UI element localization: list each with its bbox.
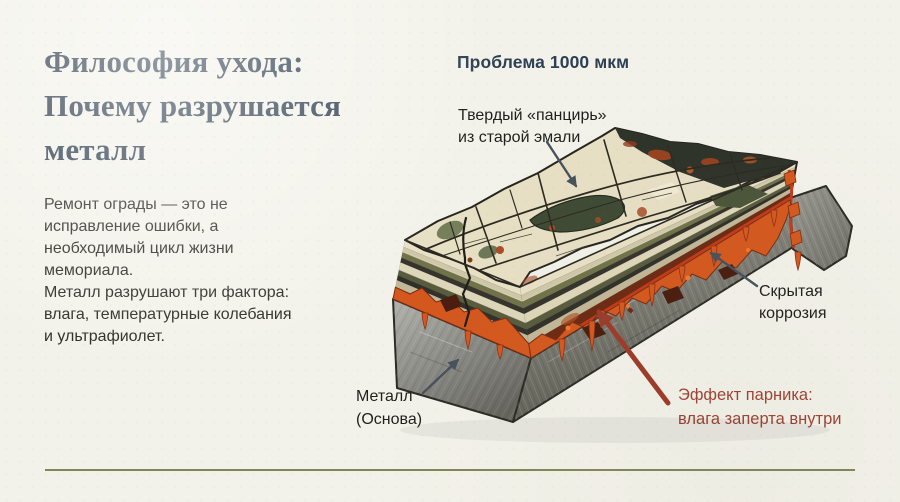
block-shadow xyxy=(400,417,830,443)
corrosion-diagram-illustration xyxy=(380,100,860,460)
diagram-heading: Проблема 1000 мкм xyxy=(457,52,629,73)
intro-paragraph: Ремонт ограды — это не исправление ошибк… xyxy=(44,194,374,348)
infographic-canvas: { "theme": { "background": "#f3f2ea", "t… xyxy=(0,0,900,502)
footer-divider xyxy=(45,469,855,471)
